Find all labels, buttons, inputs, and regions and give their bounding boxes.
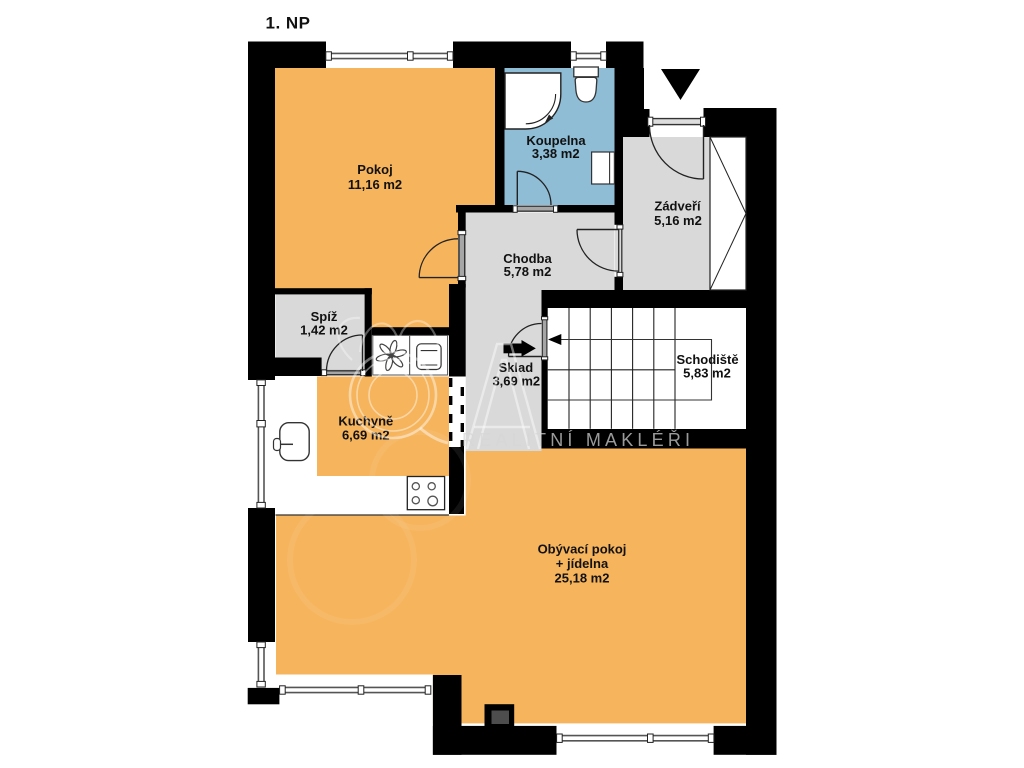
svg-text:5,78 m2: 5,78 m2 xyxy=(504,264,552,279)
svg-text:5,83 m2: 5,83 m2 xyxy=(683,366,731,381)
svg-text:3,38 m2: 3,38 m2 xyxy=(532,146,580,161)
svg-text:Kuchyně: Kuchyně xyxy=(338,414,393,429)
svg-text:Obývací pokoj: Obývací pokoj xyxy=(538,542,627,557)
svg-text:3,69 m2: 3,69 m2 xyxy=(492,374,540,389)
svg-text:Zádveří: Zádveří xyxy=(654,199,701,214)
svg-text:REALITNÍ MAKLÉŘI: REALITNÍ MAKLÉŘI xyxy=(462,430,694,450)
svg-text:5,16 m2: 5,16 m2 xyxy=(654,213,702,228)
svg-text:Pokoj: Pokoj xyxy=(357,162,392,177)
svg-text:1. NP: 1. NP xyxy=(266,14,311,33)
svg-text:25,18 m2: 25,18 m2 xyxy=(555,571,610,586)
svg-text:11,16 m2: 11,16 m2 xyxy=(348,177,402,192)
svg-text:+ jídelna: + jídelna xyxy=(556,556,609,571)
